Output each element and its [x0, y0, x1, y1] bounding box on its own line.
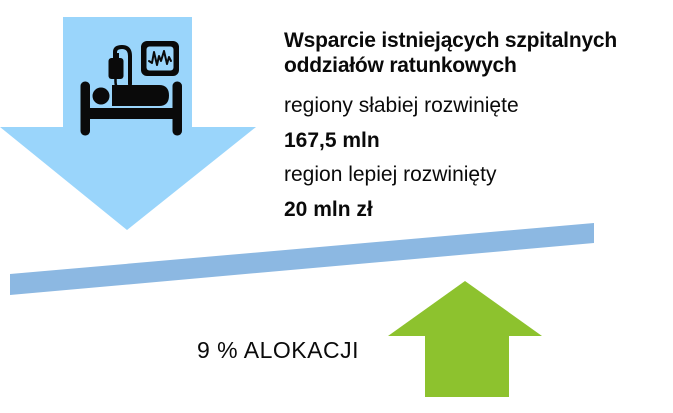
balance-beam — [10, 223, 594, 295]
info-text-block: Wsparcie istniejących szpitalnych oddzia… — [284, 28, 673, 227]
title-line-1: Wsparcie istniejących szpitalnych — [284, 28, 673, 53]
up-arrow-icon — [388, 281, 542, 397]
amount-more-developed: 20 mln zł — [284, 193, 673, 228]
region-label-more-developed: region lepiej rozwinięty — [284, 158, 673, 193]
title-line-2: oddziałów ratunkowych — [284, 53, 673, 78]
patient-head — [93, 88, 110, 105]
amount-less-developed: 167,5 mln — [284, 124, 673, 159]
bed-frame — [81, 108, 183, 119]
region-label-less-developed: regiony słabiej rozwinięte — [284, 89, 673, 124]
allocation-label: 9 % ALOKACJI — [197, 336, 359, 364]
patient-blanket — [112, 85, 169, 106]
iv-bag-icon — [109, 58, 124, 79]
funding-rows: regiony słabiej rozwinięte 167,5 mln reg… — [284, 89, 673, 227]
